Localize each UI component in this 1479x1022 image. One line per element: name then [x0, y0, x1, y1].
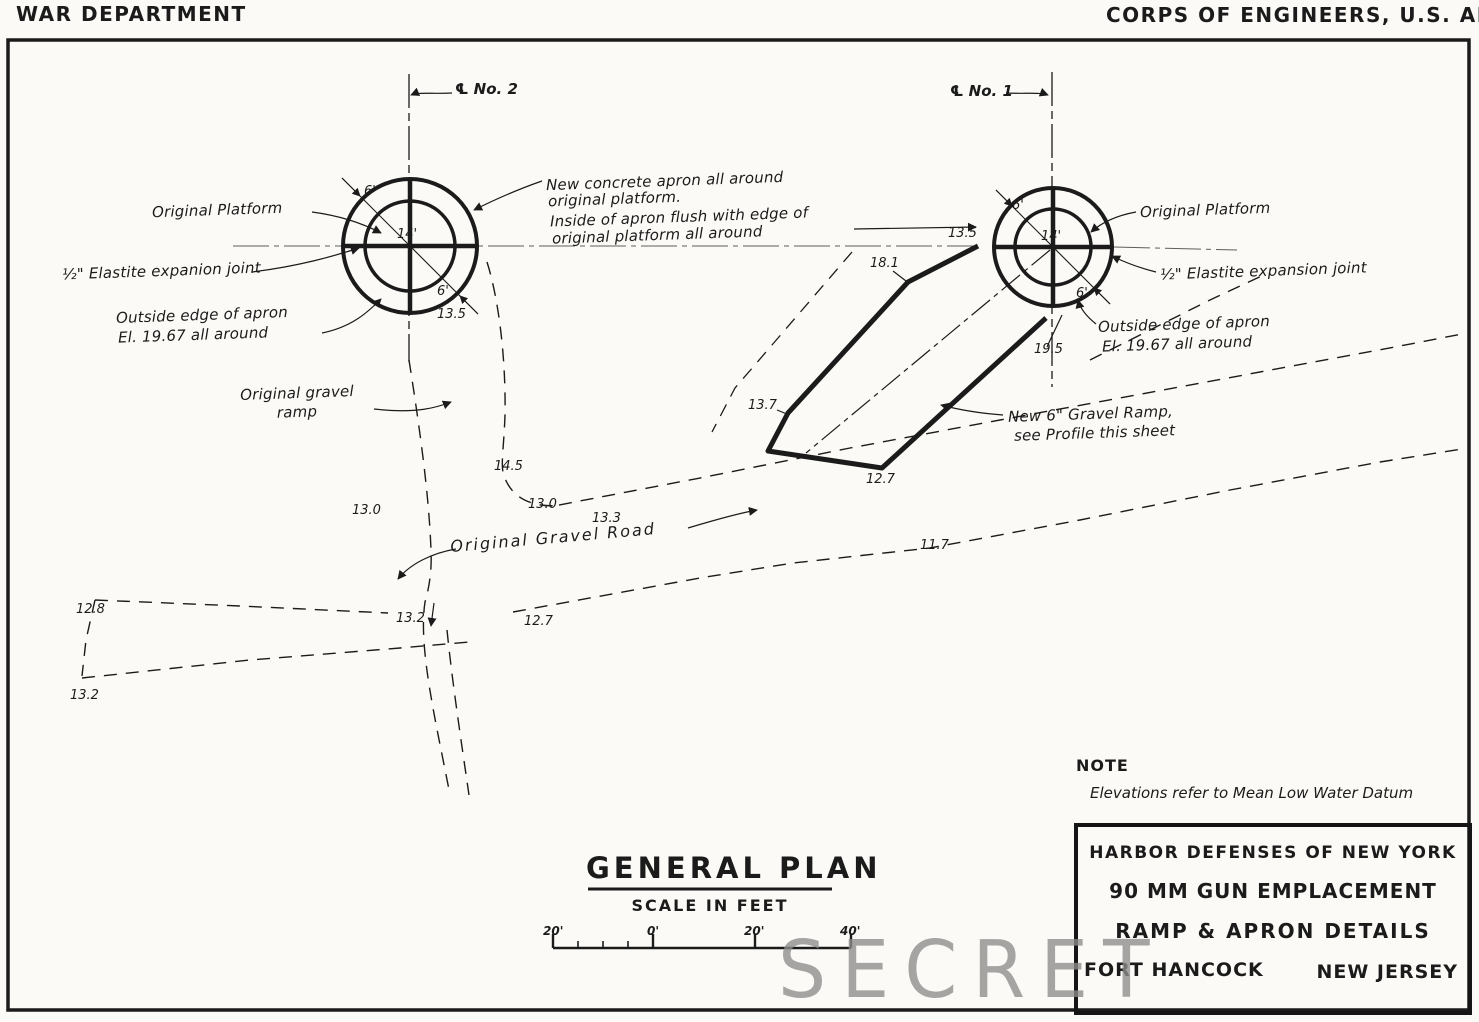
note-heading: NOTE	[1076, 756, 1129, 775]
elevation-14-5: 14.5	[494, 459, 523, 474]
elevation-13-2-far-left: 13.2	[70, 688, 99, 703]
dim-apron-upper-right: 6'	[1012, 198, 1024, 213]
plan-title: GENERAL PLAN	[586, 851, 836, 885]
title-block-state: NEW JERSEY	[1316, 961, 1458, 983]
elevation-12-7-ramp: 12.7	[866, 472, 895, 487]
note-body: Elevations refer to Mean Low Water Datum	[1090, 784, 1413, 802]
elevation-ramp-top: 19.5	[1034, 342, 1063, 357]
elevation-right-circle: 13.5	[948, 226, 977, 241]
title-block-command: HARBOR DEFENSES OF NEW YORK	[1078, 843, 1468, 863]
drawing-sheet: WAR DEPARTMENT CORPS OF ENGINEERS, U.S. …	[0, 0, 1479, 1022]
dim-arrow	[342, 178, 360, 196]
elevation-12-8: 12.8	[76, 602, 105, 617]
dim-arrow	[996, 190, 1012, 206]
dashed-contours	[82, 262, 1462, 795]
elevation-18-1: 18.1	[870, 256, 899, 271]
scale-tick-0: 0'	[647, 924, 659, 938]
scale-tick-20-left: 20'	[543, 924, 563, 938]
dim-platform-right: 14'	[1041, 229, 1061, 244]
dim-apron-lower-left: 6'	[437, 284, 449, 299]
dim-apron-upper-left: 6'	[364, 184, 376, 199]
centerline-label-no1: ℄ No. 1	[950, 82, 1013, 100]
datum-line-right	[1114, 247, 1237, 250]
elevation-12-7-road: 12.7	[524, 614, 553, 629]
dim-arrow	[1094, 288, 1110, 304]
elevation-left-circle: 13.5	[437, 307, 466, 322]
elevation-11-7: 11.7	[920, 538, 949, 553]
corps-header: CORPS OF ENGINEERS, U.S. ARMY	[1106, 3, 1479, 27]
dim-platform-left: 14'	[397, 227, 417, 242]
original-ramp-dashed-edge	[712, 252, 852, 432]
scale-tick-20-right: 20'	[744, 924, 764, 938]
elevation-13-2-mid: 13.2	[396, 611, 425, 626]
elevation-13-0-mid: 13.0	[528, 497, 557, 512]
dim-apron-lower-right: 6'	[1076, 286, 1088, 301]
elevation-13-0-left: 13.0	[352, 503, 381, 518]
title-block-subject: 90 MM GUN EMPLACEMENT	[1078, 879, 1468, 903]
centerline-label-no2: ℄ No. 2	[455, 80, 518, 98]
elevation-13-7: 13.7	[748, 398, 777, 413]
war-department-header: WAR DEPARTMENT	[16, 2, 247, 26]
scale-label: SCALE IN FEET	[620, 896, 800, 915]
secret-stamp: SECRET	[778, 923, 1165, 1016]
